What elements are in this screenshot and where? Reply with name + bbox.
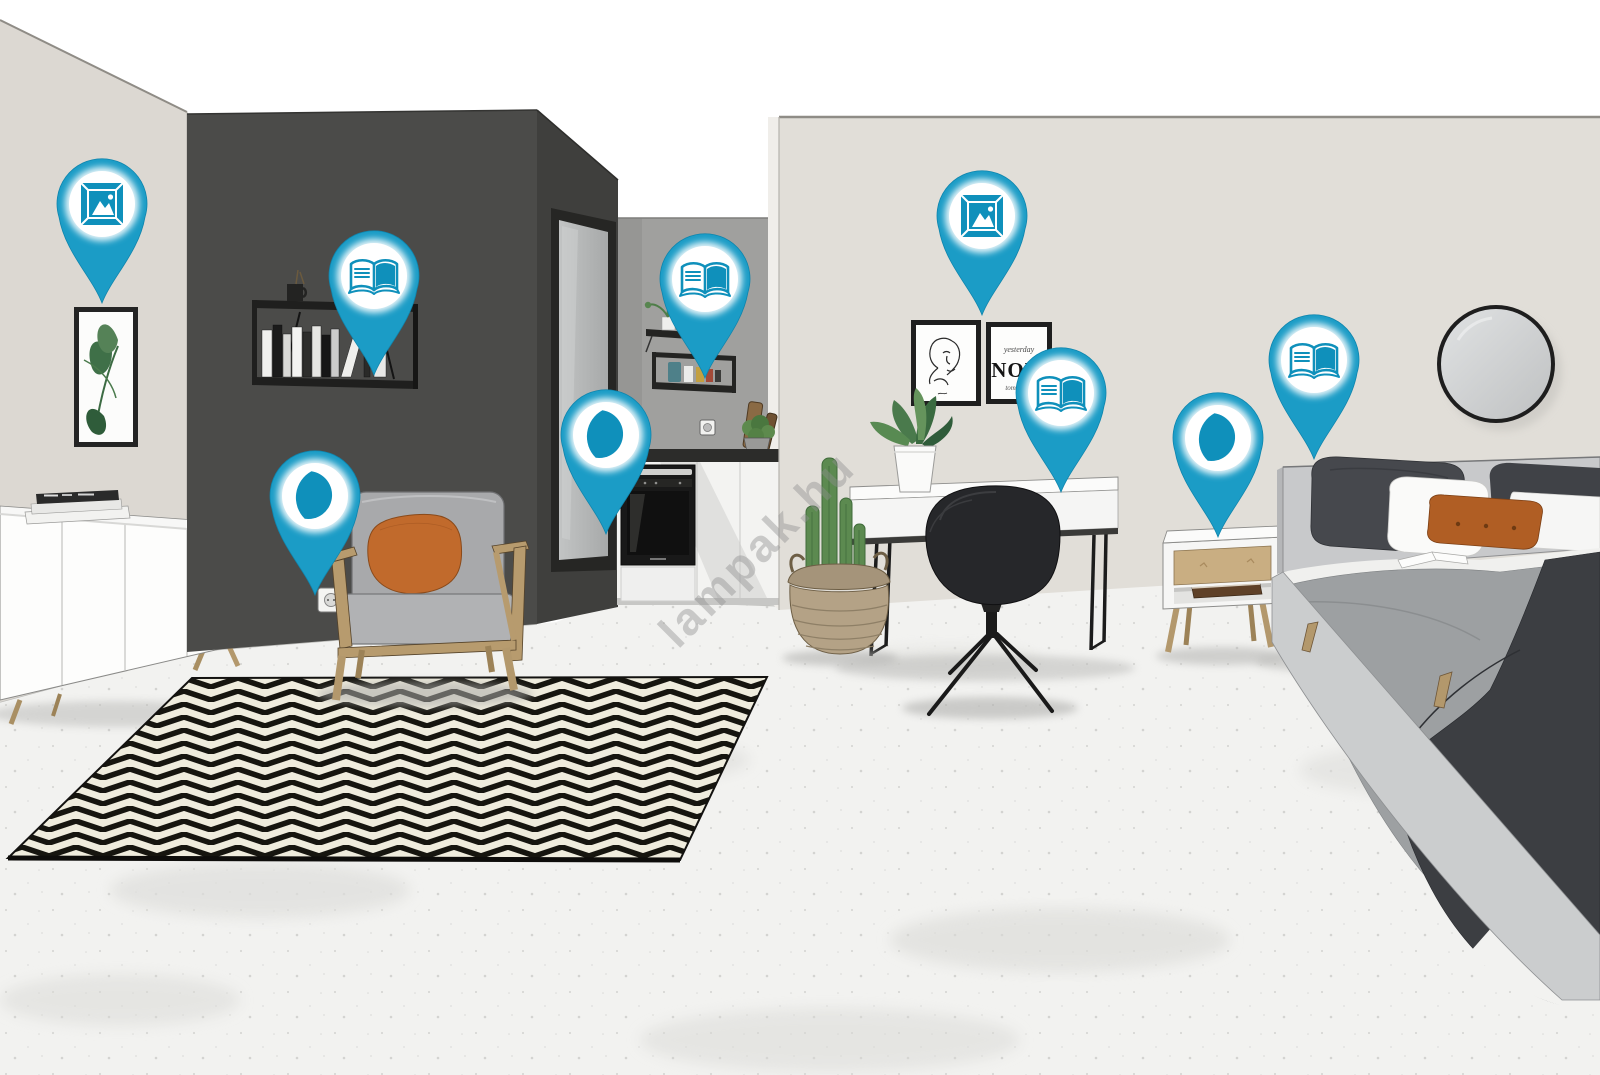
doorway-light-hotspot[interactable] xyxy=(556,387,656,537)
pin-icon xyxy=(961,195,1003,237)
pin-body xyxy=(660,234,750,378)
pin-body xyxy=(329,231,419,375)
wall-art-hotspot-left[interactable] xyxy=(52,156,152,306)
kitchen-shelf-hotspot[interactable] xyxy=(655,231,755,381)
reading-light-hotspot-lounge[interactable] xyxy=(265,448,365,598)
pin-icon xyxy=(81,183,123,225)
wall-art-hotspot-bedroom[interactable] xyxy=(932,168,1032,318)
bedside-books-hotspot[interactable] xyxy=(1264,312,1364,462)
pin-body xyxy=(1016,348,1106,492)
nightstand-light-hotspot[interactable] xyxy=(1168,390,1268,540)
pin-body xyxy=(937,171,1027,315)
bookshelf-hotspot[interactable] xyxy=(324,228,424,378)
desk-books-hotspot[interactable] xyxy=(1011,345,1111,495)
pin-body xyxy=(1269,315,1359,459)
room-visualization: yesterday NOW tomorrow xyxy=(0,0,1600,1075)
pin-body xyxy=(57,159,147,303)
hotspot-layer xyxy=(0,0,1600,1075)
